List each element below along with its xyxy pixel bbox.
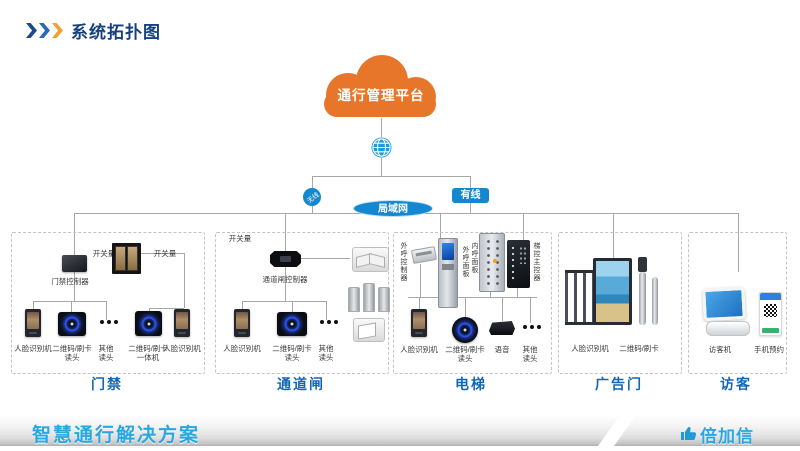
chevron-icon — [52, 23, 63, 38]
qr-card-allinone-device — [135, 311, 162, 336]
door-sensor-image — [112, 243, 141, 274]
connector-line — [33, 301, 34, 309]
voice-device — [489, 321, 515, 335]
device-label: 人脸识别机 — [568, 344, 612, 353]
connector-line — [292, 301, 293, 312]
chevron-icon — [26, 23, 37, 38]
cloud-platform-label: 通行管理平台 — [311, 84, 451, 104]
connector-line — [312, 176, 313, 188]
access-controller-device — [62, 255, 87, 272]
pole-image — [652, 277, 658, 325]
device-label: 其他 读头 — [84, 344, 128, 362]
connector-line — [470, 176, 471, 188]
ad-gate-screen-image — [593, 258, 632, 325]
connector-line — [419, 297, 420, 309]
device-label-line: 读头 — [443, 354, 487, 363]
pole-image — [639, 272, 646, 325]
lan-badge: 局域网 — [353, 200, 433, 217]
connector-line — [465, 297, 466, 317]
thumbs-up-icon — [680, 425, 697, 441]
device-label: 访客机 — [698, 345, 742, 354]
group-caption-access: 门禁 — [57, 374, 157, 394]
device-label: 其他 读头 — [508, 345, 552, 363]
panel-label: 外呼面板 — [461, 246, 470, 278]
wireless-label: 无线 — [304, 189, 320, 205]
footer-solution-text: 智慧通行解决方案 — [32, 420, 200, 447]
device-label: 人脸识别机 — [220, 344, 264, 353]
connector-line — [490, 292, 491, 297]
topology-page: 系统拓扑图 通行管理平台 无线 有线 局域网 — [0, 0, 800, 451]
controller-label: 通道闸控制器 — [255, 275, 315, 284]
connector-line — [530, 297, 531, 323]
connector-line — [285, 267, 286, 301]
device-label-line: 一体机 — [126, 353, 170, 362]
connector-line — [71, 301, 72, 312]
more-devices-dots — [320, 320, 338, 324]
group-caption-ad-door: 广告门 — [569, 374, 669, 394]
device-label: 手机预约 — [747, 345, 791, 354]
elevator-control-host-device — [507, 240, 530, 288]
device-label: 其他 读头 — [304, 344, 348, 362]
group-caption-elevator: 电梯 — [421, 374, 521, 394]
connector-line — [326, 301, 327, 320]
page-title: 系统拓扑图 — [71, 18, 161, 43]
connector-line — [33, 301, 106, 302]
panel-label: 内呼面板 — [470, 242, 479, 274]
connector-line — [242, 301, 243, 309]
controller-label: 门禁控制器 — [44, 277, 96, 286]
connector-line — [502, 297, 503, 321]
outside-call-panel-device — [438, 238, 458, 308]
page-header: 系统拓扑图 — [26, 18, 161, 43]
visitor-terminal-base — [706, 321, 750, 336]
connector-line — [106, 301, 107, 320]
device-label-line: 其他 — [304, 344, 348, 353]
chevron-icon — [39, 23, 50, 38]
connector-line — [420, 264, 421, 297]
face-recognition-device — [411, 309, 427, 337]
pole-camera-image — [638, 257, 647, 272]
device-label: 人脸识别机 — [397, 345, 441, 354]
connector-line — [381, 118, 382, 137]
turnstile-image — [346, 283, 388, 312]
internet-globe-icon — [371, 137, 392, 158]
face-recognition-device — [25, 309, 41, 337]
more-devices-dots — [100, 320, 118, 324]
face-recognition-device — [234, 309, 250, 337]
phone-card-header — [760, 293, 781, 300]
device-label-line: 其他 — [508, 345, 552, 354]
turnstile-image — [352, 247, 389, 272]
panel-label: 梯控主控器 — [532, 242, 541, 282]
wireless-badge: 无线 — [303, 188, 321, 206]
connector-line — [381, 158, 382, 176]
phone-qr-card-image — [759, 292, 782, 336]
qr-code-icon — [764, 304, 777, 317]
qr-card-reader-device — [452, 317, 478, 343]
connector-line — [298, 258, 350, 259]
connector-line — [184, 253, 185, 308]
footer-brand-text: 倍加信 — [700, 422, 754, 447]
wired-badge: 有线 — [452, 188, 489, 203]
connector-line — [408, 297, 537, 298]
device-label-line: 其他 — [84, 344, 128, 353]
panel-label: 外呼控制器 — [399, 242, 408, 282]
connector-line — [517, 288, 518, 297]
connector-line — [312, 176, 470, 177]
device-label-line: 读头 — [304, 353, 348, 362]
qr-card-reader-device — [277, 312, 307, 336]
device-label-line: 读头 — [84, 353, 128, 362]
device-label: 人脸识别机 — [11, 344, 55, 353]
group-caption-gate: 通道闸 — [251, 374, 351, 394]
device-label-line: 读头 — [508, 354, 552, 363]
group-caption-visitor: 访客 — [686, 374, 786, 394]
device-label: 人脸识别机 — [160, 344, 204, 353]
signal-label: 开关量 — [150, 249, 180, 258]
visitor-terminal-device — [702, 287, 746, 321]
more-devices-dots — [523, 325, 541, 329]
connector-line — [242, 301, 326, 302]
turnstile-image — [353, 318, 385, 342]
qr-card-reader-device — [58, 312, 86, 336]
gate-controller-device — [270, 251, 301, 267]
ad-gate-fence-image — [565, 270, 594, 325]
phone-card-footer — [762, 328, 779, 333]
inside-call-panel-device — [479, 233, 505, 292]
face-recognition-device — [174, 309, 190, 337]
signal-label: 开关量 — [225, 234, 255, 243]
device-label: 二维码/刷卡 — [617, 344, 661, 353]
